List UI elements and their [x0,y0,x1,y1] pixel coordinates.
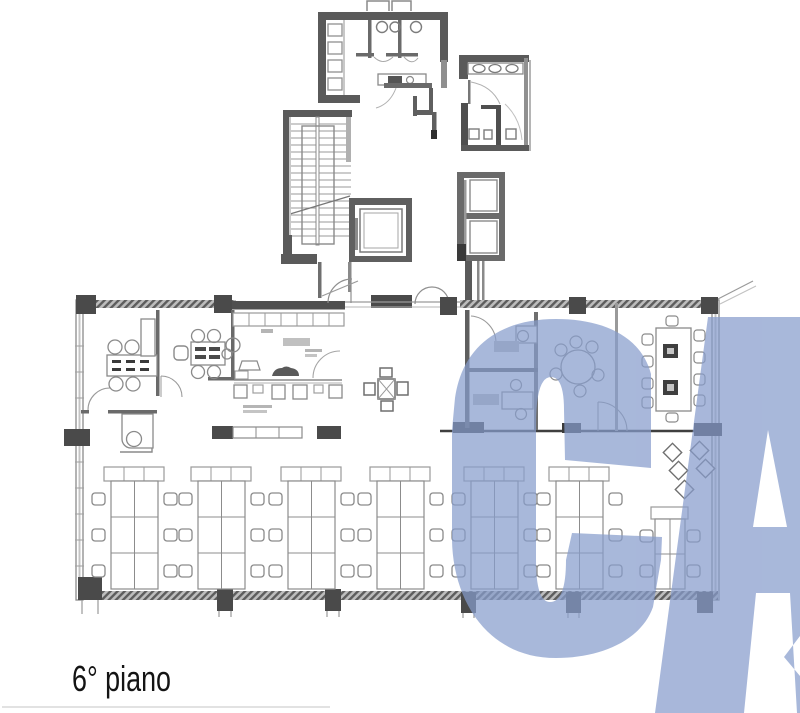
svg-text:6° piano: 6° piano [72,658,171,699]
